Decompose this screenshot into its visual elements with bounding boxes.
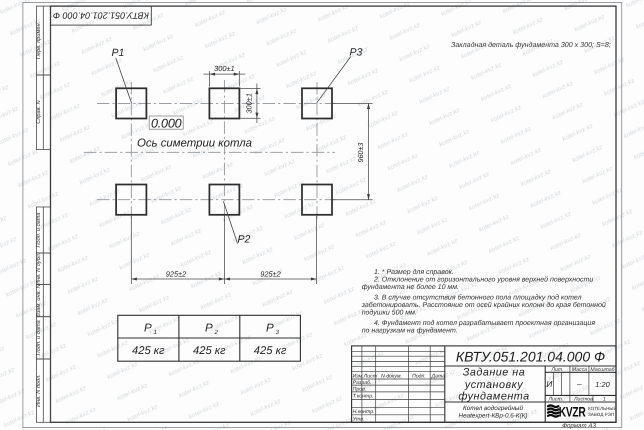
svg-text:1. * Размер для справок.: 1. * Размер для справок. — [374, 268, 454, 276]
svg-text:Дата: Дата — [431, 373, 446, 379]
svg-text:Изм.Лист: Изм.Лист — [353, 373, 378, 379]
svg-text:Утв.: Утв. — [353, 416, 365, 422]
svg-text:КОТЕЛЬНЫЙ: КОТЕЛЬНЫЙ — [588, 405, 617, 411]
svg-text:Н.контр.: Н.контр. — [353, 409, 375, 415]
svg-text:4. Фундамент под котел разраба: 4. Фундамент под котел разрабатывает про… — [374, 319, 595, 327]
svg-text:P: P — [266, 323, 274, 335]
svg-text:2. Отклонение от горизонтально: 2. Отклонение от горизонтального уровня … — [373, 275, 593, 283]
svg-text:960±3: 960±3 — [357, 143, 365, 163]
svg-text:425 кг: 425 кг — [132, 345, 165, 357]
svg-text:КВТУ.051.201.04.000 Ф: КВТУ.051.201.04.000 Ф — [456, 348, 605, 364]
svg-text:–: – — [576, 379, 582, 389]
svg-text:300±1: 300±1 — [245, 93, 254, 114]
svg-text:Перв. примен.: Перв. примен. — [36, 22, 42, 59]
svg-text:Котел водогрейный: Котел водогрейный — [463, 405, 523, 412]
svg-text:КВТУ.051.201.04.000 Ф: КВТУ.051.201.04.000 Ф — [53, 11, 149, 21]
svg-text:Инв. N подл.: Инв. N подл. — [35, 374, 42, 407]
svg-text:Масса: Масса — [572, 367, 587, 373]
svg-text:Листов: Листов — [573, 396, 593, 402]
svg-text:забетонировать. Расстояние от: забетонировать. Расстояние от осей крайн… — [361, 301, 606, 309]
svg-text:P: P — [144, 323, 152, 335]
svg-text:Подп. и дата: Подп. и дата — [35, 320, 42, 355]
svg-text:Формат А3: Формат А3 — [562, 422, 596, 429]
svg-text:925±2: 925±2 — [166, 269, 187, 278]
svg-text:Heatexpert-КВр-0,6-К(К): Heatexpert-КВр-0,6-К(К) — [459, 412, 528, 419]
svg-text:Инв. N дубл.: Инв. N дубл. — [35, 253, 42, 285]
svg-text:Масштаб: Масштаб — [590, 367, 615, 373]
svg-text:фундамента не более 10 мм.: фундамента не более 10 мм. — [362, 283, 459, 291]
svg-text:Справ. N: Справ. N — [36, 99, 42, 123]
svg-text:1: 1 — [154, 329, 157, 336]
svg-text:Взам. инв. N: Взам. инв. N — [36, 283, 42, 317]
svg-text:3. В случае отсутствия бетонно: 3. В случае отсутствия бетонного пола пл… — [374, 293, 582, 301]
svg-text:подушки 500 мм.: подушки 500 мм. — [362, 308, 417, 316]
svg-text:ЗАВОД РЭП: ЗАВОД РЭП — [588, 412, 614, 417]
svg-text:P3: P3 — [350, 47, 363, 59]
svg-text:по нагрузкам на фундамент.: по нагрузкам на фундамент. — [362, 327, 458, 335]
svg-text:P1: P1 — [112, 47, 125, 59]
svg-text:N докум.: N докум. — [381, 373, 402, 379]
svg-text:1: 1 — [603, 396, 606, 402]
svg-text:925±2: 925±2 — [260, 269, 281, 278]
svg-text:И: И — [546, 379, 553, 389]
svg-text:425 кг: 425 кг — [193, 345, 226, 357]
svg-text:Лит.: Лит. — [550, 367, 563, 373]
svg-text:300±1: 300±1 — [214, 64, 235, 73]
svg-text:Задание на: Задание на — [463, 367, 526, 379]
svg-text:0.000: 0.000 — [151, 117, 182, 131]
svg-text:Закладная деталь фундамента 3: Закладная деталь фундамента 300 х 300; S… — [451, 41, 611, 49]
svg-text:Т.контр.: Т.контр. — [353, 393, 374, 399]
svg-text:Пров.: Пров. — [353, 386, 367, 392]
svg-text:установку: установку — [464, 379, 523, 391]
svg-text:425 кг: 425 кг — [254, 345, 287, 357]
svg-text:Разраб.: Разраб. — [353, 380, 372, 386]
svg-text:Лист.: Лист. — [548, 396, 564, 402]
svg-text:2: 2 — [214, 329, 219, 336]
svg-text:фундамента: фундамента — [458, 391, 529, 403]
svg-text:1:20: 1:20 — [595, 380, 610, 389]
svg-text:P2: P2 — [238, 234, 251, 246]
svg-text:P: P — [205, 323, 213, 335]
svg-text:Подп.: Подп. — [412, 373, 426, 379]
svg-text:Подп. и дата: Подп. и дата — [35, 212, 42, 247]
svg-text:Ось симетрии котла: Ось симетрии котла — [137, 137, 252, 149]
svg-text:KVZR: KVZR — [559, 405, 586, 420]
